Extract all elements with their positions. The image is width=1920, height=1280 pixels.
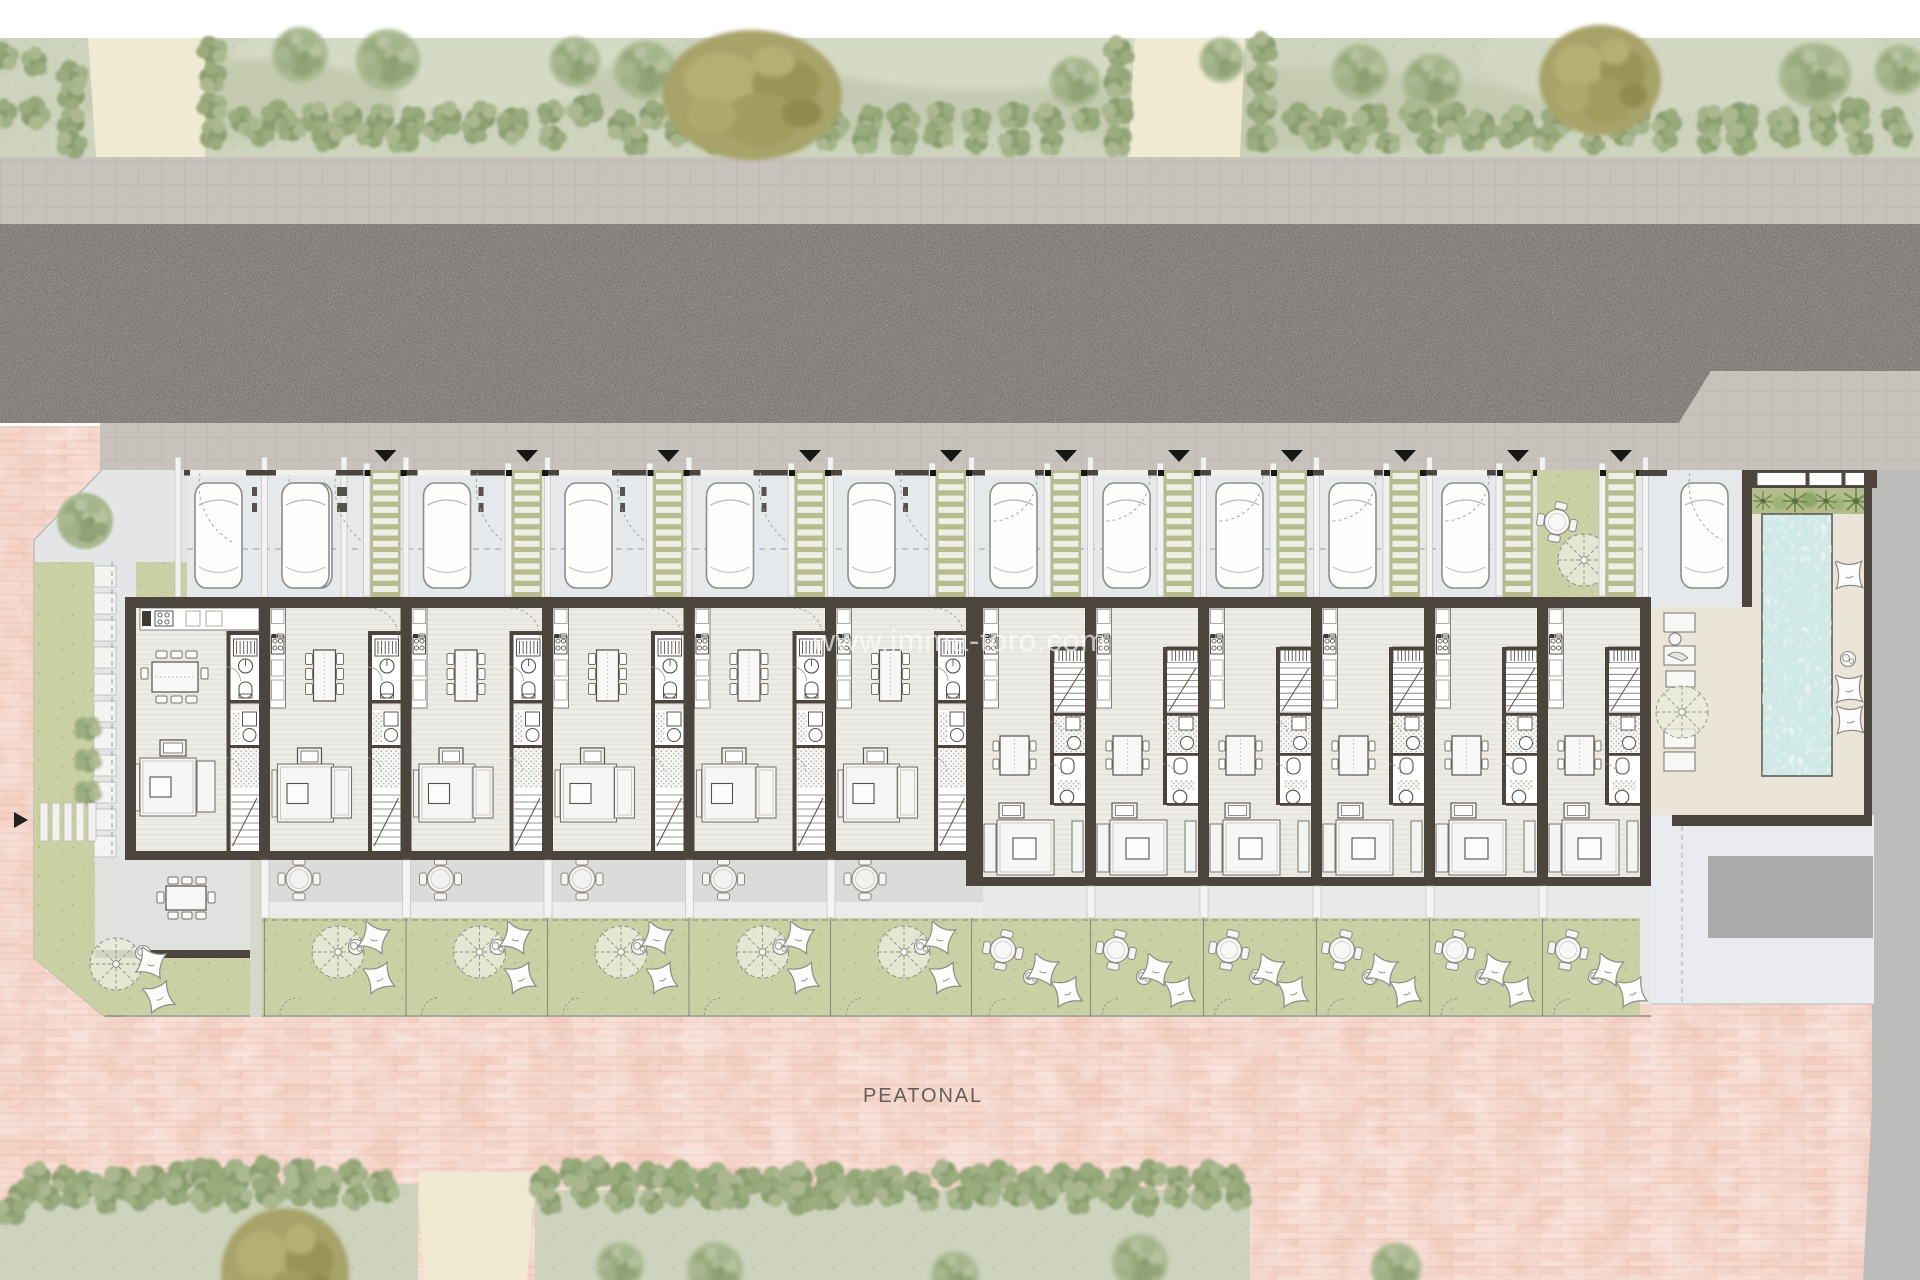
svg-text:www.imma-toro.com: www.imma-toro.com [812,623,1107,658]
svg-text:PEATONAL: PEATONAL [863,1085,983,1107]
